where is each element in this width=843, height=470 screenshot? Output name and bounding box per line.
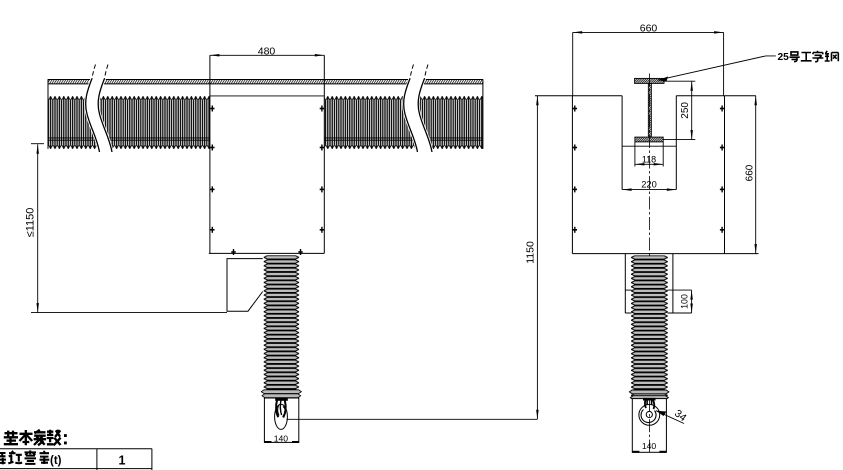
svg-text:220: 220	[641, 180, 657, 190]
svg-text:660: 660	[744, 164, 755, 181]
svg-text:480: 480	[258, 45, 276, 57]
svg-text:100: 100	[680, 294, 690, 309]
svg-text:34: 34	[672, 407, 689, 424]
svg-text:1150: 1150	[525, 241, 537, 264]
svg-text:140: 140	[274, 434, 289, 444]
svg-text:25: 25	[778, 52, 790, 63]
svg-text:118: 118	[642, 154, 656, 164]
svg-text:250: 250	[680, 102, 691, 119]
svg-text:140: 140	[642, 441, 657, 451]
svg-text:≤1150: ≤1150	[25, 208, 37, 238]
svg-text:1: 1	[119, 454, 126, 468]
svg-text:(t): (t)	[50, 455, 62, 467]
svg-text:660: 660	[640, 22, 658, 34]
